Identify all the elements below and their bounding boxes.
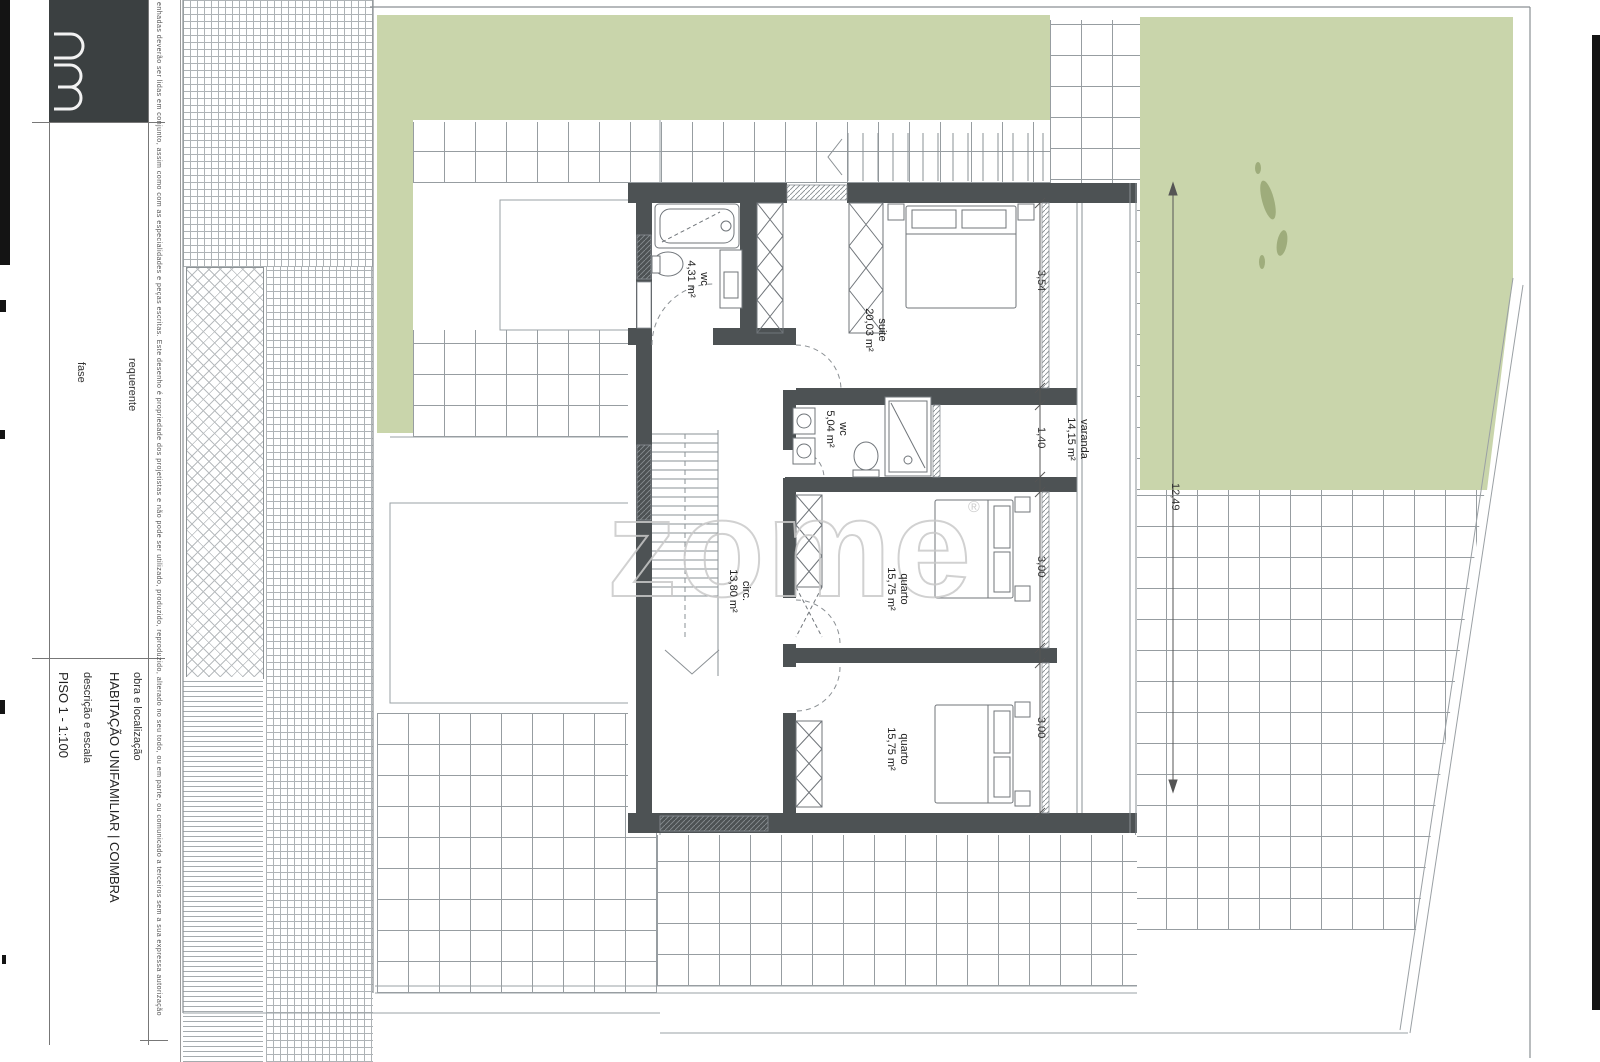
room-label-quarto2: quarto 15,75 m² [884,713,910,785]
architect-logo-icon [49,0,148,122]
room-area: 4,31 m² [684,243,697,315]
room-label-wc2: wc 5,04 m² [823,393,849,465]
scan-stain [1255,162,1289,269]
room-area: 13,80 m² [726,555,739,627]
room-name: varanda [1077,403,1090,475]
dim-12-49: 12,49 [1169,483,1181,511]
titleblock-tick-2 [32,658,165,659]
drawing-sheet: zome ® wc 4,31 m² suite 20,03 m² wc 5,04… [0,0,1600,1062]
room-name: suite [875,294,888,366]
sheet-edge-line [180,0,181,1062]
room-name: quarto [897,553,910,625]
dim-3-00b: 3,00 [1035,717,1047,738]
floor-plan-drawing: zome ® [0,0,1600,1062]
scan-edge-right [1592,35,1600,1010]
room-name: circ. [739,555,752,627]
titleblock-line-left [49,122,50,1045]
room-label-varanda: varanda 14,15 m² [1064,403,1090,475]
room-area: 20,03 m² [862,294,875,366]
dim-1-40: 1,40 [1035,427,1047,448]
room-area: 15,75 m² [884,553,897,625]
zome-watermark: zome ® [607,469,980,626]
scan-mark-2 [0,430,5,439]
svg-text:zome: zome [607,469,973,626]
copyright-disclaimer: enhadas deverão ser lidas em conjunto, a… [155,2,162,1016]
svg-text:®: ® [968,499,980,516]
scan-mark-1 [0,300,6,312]
field-value-escala: PISO 1 - 1:100 [56,672,71,758]
room-label-circ: circ. 13,80 m² [726,555,752,627]
scan-mark-3 [0,700,5,714]
room-name: wc [836,393,849,465]
room-name: wc [697,243,710,315]
field-value-obra: HABITAÇÃO UNIFAMILIAR | COIMBRA [107,672,122,903]
room-area: 5,04 m² [823,393,836,465]
room-area: 14,15 m² [1064,403,1077,475]
room-label-wc1: wc 4,31 m² [684,243,710,315]
scan-edge-left [0,0,10,265]
room-name: quarto [897,713,910,785]
room-label-suite: suite 20,03 m² [862,294,888,366]
field-label-requerente: requerente [126,358,138,411]
titleblock-tick-1 [32,122,165,123]
field-label-obra: obra e localização [131,672,143,761]
room-area: 15,75 m² [884,713,897,785]
architect-logo-box [49,0,148,122]
dim-3-00a: 3,00 [1035,556,1047,577]
room-label-quarto1: quarto 15,75 m² [884,553,910,625]
field-label-fase: fase [75,362,87,383]
titleblock-line-right [148,0,149,1045]
field-label-descricao: descrição e escala [81,672,93,763]
dim-3-54: 3,54 [1035,270,1047,291]
exterior-stairs [828,133,1043,181]
scan-mark-4 [2,955,6,964]
titleblock-tick-3 [140,1040,168,1041]
